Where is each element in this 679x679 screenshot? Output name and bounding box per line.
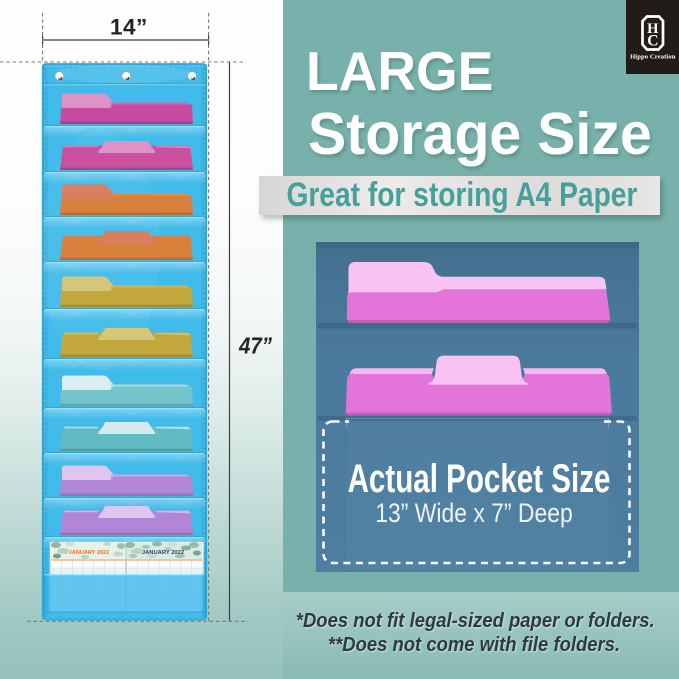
svg-text:JANUARY 2022: JANUARY 2022 <box>142 550 184 556</box>
svg-text:Hippo Creation: Hippo Creation <box>630 54 676 61</box>
svg-text:C: C <box>647 33 658 50</box>
svg-text:JANUARY 2022: JANUARY 2022 <box>69 550 110 556</box>
svg-text:47”: 47” <box>238 332 272 358</box>
svg-text:14”: 14” <box>110 15 148 40</box>
